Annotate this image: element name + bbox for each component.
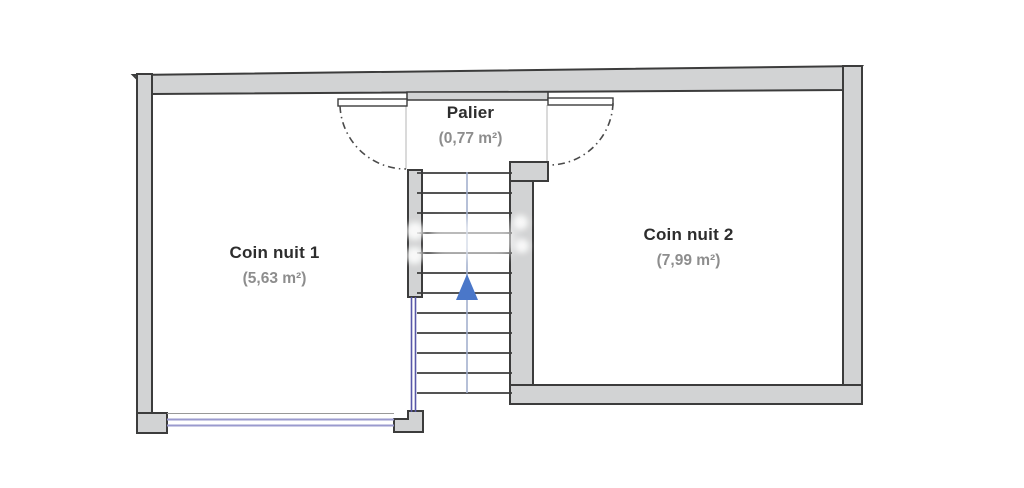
stair-railing — [412, 297, 416, 412]
door-swing-arc — [340, 106, 406, 169]
window-coin-nuit-1 — [167, 414, 394, 426]
watermark-dot — [513, 215, 528, 230]
left-wall-foot — [137, 413, 167, 433]
door-swing-arc — [549, 103, 613, 165]
stair-bottom-wall — [394, 411, 423, 432]
left-wall — [137, 74, 152, 433]
door-coin-nuit-1 — [338, 99, 407, 169]
watermark-dot — [515, 239, 529, 253]
right-wall — [843, 66, 862, 404]
door-coin-nuit-2 — [548, 98, 613, 165]
door-leaf — [548, 98, 613, 105]
up-arrow-icon — [456, 274, 478, 300]
palier-wall-lip — [407, 92, 548, 100]
watermark-dot — [406, 222, 424, 240]
stair-right-wall — [510, 181, 533, 385]
top-wall — [133, 66, 862, 94]
door-leaf — [338, 99, 407, 106]
watermark-dot — [406, 247, 423, 264]
bottom-wall — [510, 385, 862, 404]
floor-plan: Palier (0,77 m²) Coin nuit 1 (5,63 m²) C… — [0, 0, 1024, 488]
stair-right-wall-cap — [510, 162, 548, 181]
watermark-blur — [428, 221, 516, 258]
